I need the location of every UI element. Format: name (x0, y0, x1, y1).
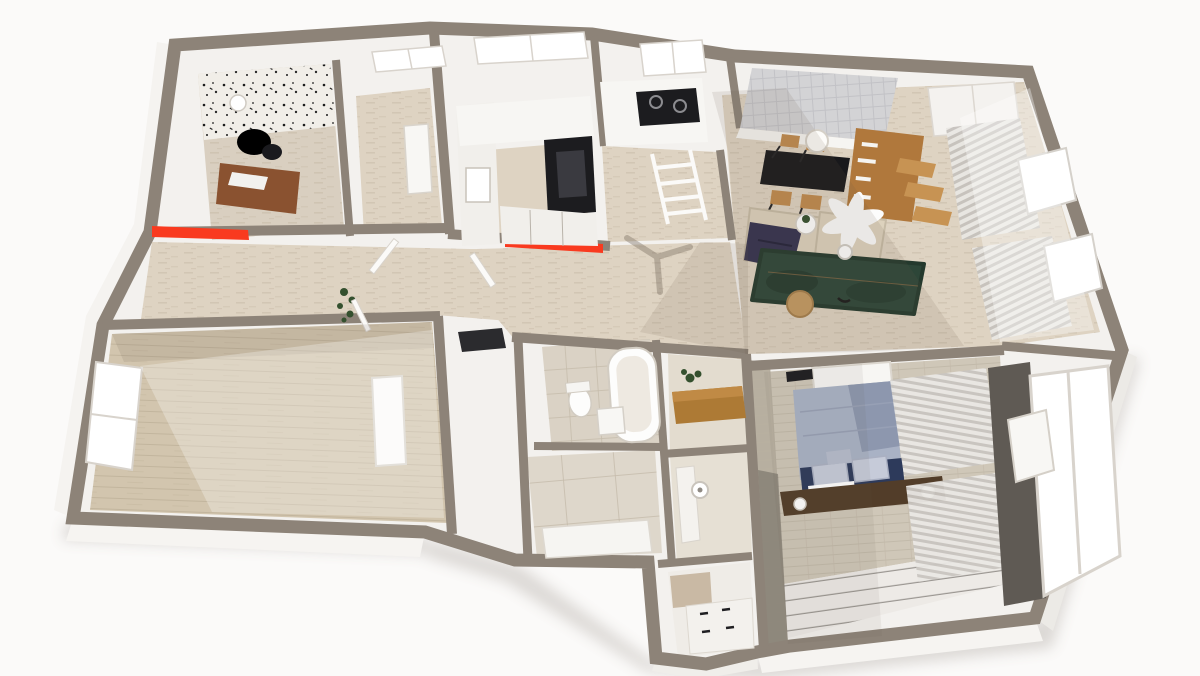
laundry-tan-cabinet (670, 572, 712, 608)
nook-window (640, 40, 706, 76)
gas-cooktop (636, 88, 700, 126)
kitchen-oven-glass (556, 150, 587, 198)
bedroom3-window (86, 362, 142, 470)
office-pendant-lamp (230, 95, 246, 111)
laundry-drawers (686, 598, 754, 654)
kitchen-window (474, 32, 588, 64)
curtain-panel (890, 368, 1000, 476)
pantry-floor-texture (602, 146, 730, 242)
wall-bath-dressing (534, 446, 662, 447)
open-sash (1008, 410, 1054, 482)
bath-cabinet (597, 407, 625, 435)
kitchen-sink (466, 168, 490, 202)
toilet-tank (566, 381, 591, 393)
corridor-dark-counter (458, 328, 506, 352)
office-chair-back (262, 144, 282, 160)
toilet-paper-core (698, 488, 703, 493)
floorplan-svg (0, 0, 1200, 676)
floorplan-render (0, 0, 1200, 676)
bedroom2-bench (404, 124, 432, 194)
